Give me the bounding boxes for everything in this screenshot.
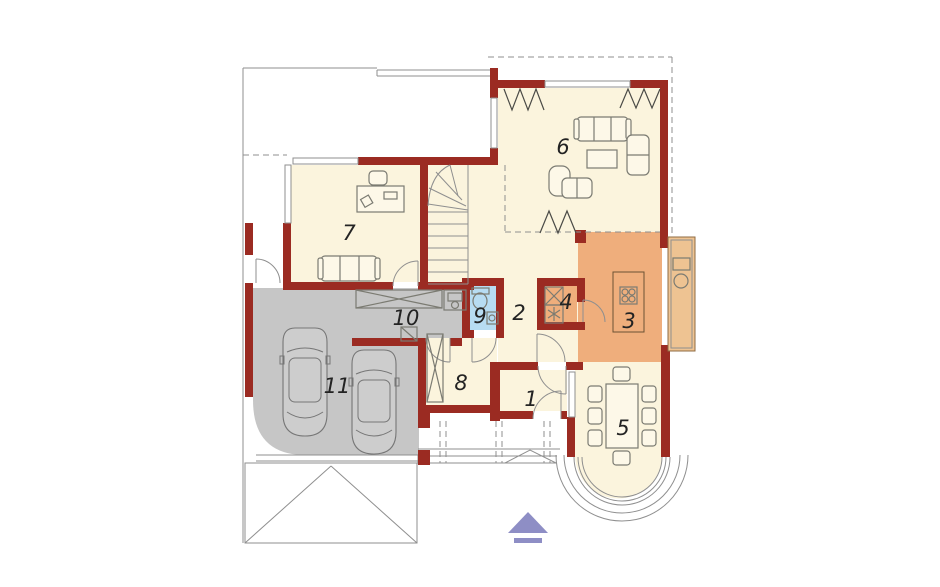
entrance-marker-icon: [508, 512, 548, 543]
sofa-3seat-icon: [318, 256, 380, 281]
coffee-table-icon: [587, 150, 617, 168]
side-door: [256, 259, 280, 283]
chair-icon: [588, 408, 602, 424]
living-left-window: [491, 98, 497, 148]
desk-tray-icon: [384, 192, 397, 199]
chair-icon: [588, 430, 602, 446]
chair-icon: [642, 430, 656, 446]
office-left-window: [285, 165, 291, 223]
car-icon: [280, 328, 330, 436]
stair-hall-floor: [428, 165, 498, 290]
chair-icon: [613, 367, 630, 381]
room-label-11: 11: [324, 374, 351, 398]
room-label-10: 10: [393, 306, 420, 330]
room-label-9: 9: [473, 304, 486, 328]
room1-dining-partition: [569, 372, 575, 417]
kitchen-bay-counter: [668, 237, 695, 351]
entry-porch-steps: [417, 421, 560, 463]
room-label-2: 2: [512, 301, 525, 325]
chair-icon: [642, 408, 656, 424]
room-label-1: 1: [524, 387, 537, 411]
sofa-3seat-icon: [574, 117, 631, 141]
desk-chair-icon: [369, 171, 387, 185]
armchair-icon: [627, 135, 649, 175]
room-label-8: 8: [454, 371, 467, 395]
room-label-6: 6: [556, 135, 569, 159]
driveway-canopy: [245, 463, 417, 543]
room-label-5: 5: [616, 416, 629, 440]
room-label-7: 7: [342, 221, 356, 245]
floor-plan-page: 1 2 3 4 5 6 7 8 9 10 11: [0, 0, 940, 587]
chair-icon: [588, 386, 602, 402]
living-top-window: [545, 81, 630, 87]
office-top-window: [293, 158, 358, 164]
room-label-4: 4: [559, 290, 572, 314]
chair-icon: [613, 451, 630, 465]
floor-plan-drawing: 1 2 3 4 5 6 7 8 9 10 11: [0, 0, 940, 587]
porch-columns: [440, 421, 550, 463]
room-label-3: 3: [622, 309, 635, 333]
car-icon: [349, 350, 399, 454]
chair-icon: [642, 386, 656, 402]
